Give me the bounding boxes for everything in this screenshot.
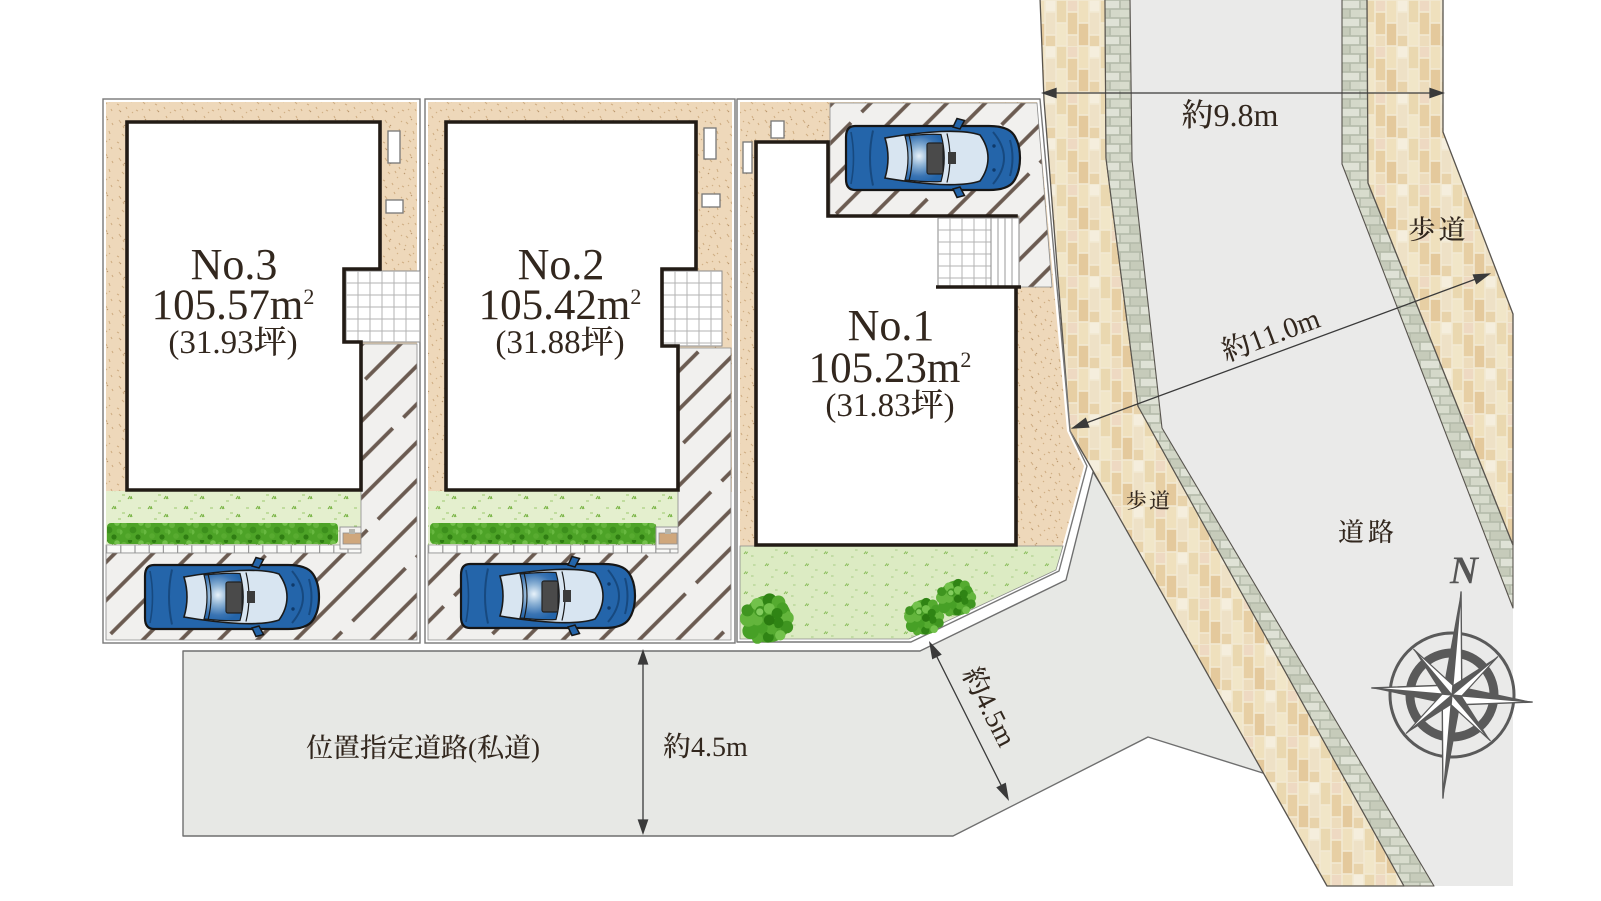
svg-text:105.57m2: 105.57m2 bbox=[152, 282, 315, 329]
svg-text:105.42m2: 105.42m2 bbox=[479, 282, 642, 329]
svg-text:No.1: No.1 bbox=[848, 301, 935, 350]
svg-text:105.23m2: 105.23m2 bbox=[809, 345, 972, 392]
svg-text:N: N bbox=[1449, 549, 1480, 592]
